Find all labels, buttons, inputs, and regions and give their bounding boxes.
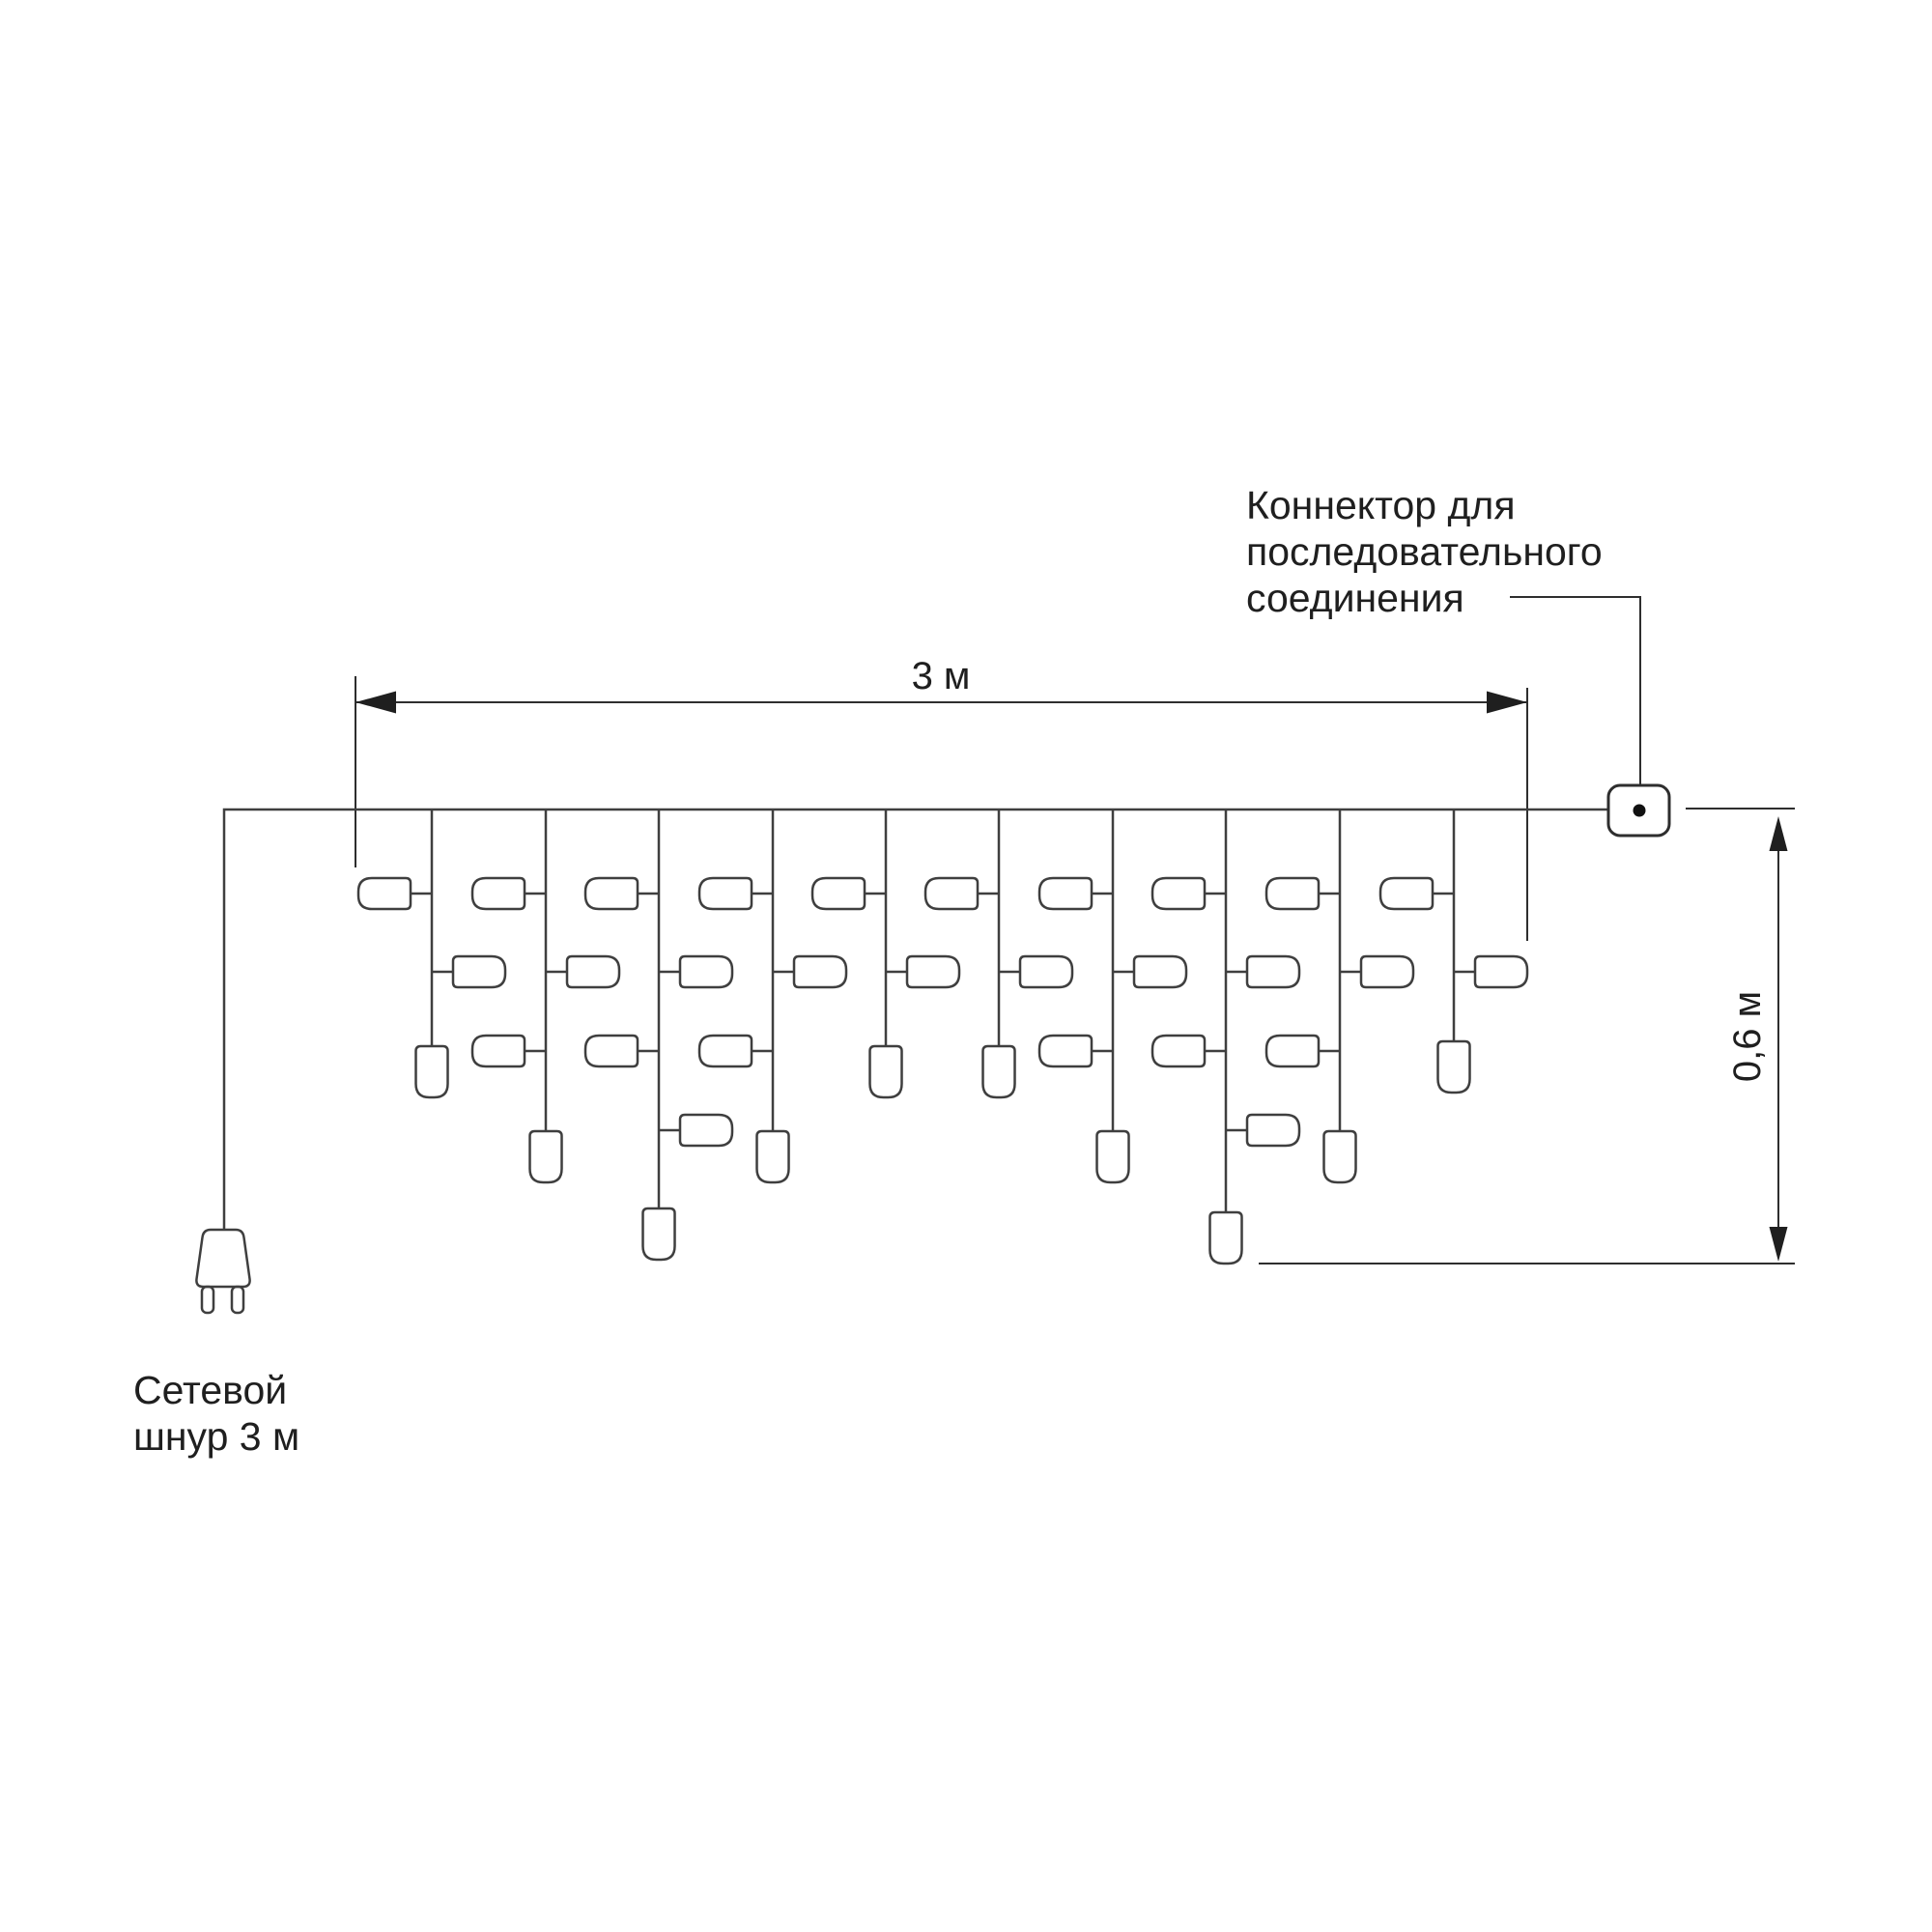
bulb — [1266, 1036, 1319, 1066]
connector-label: Коннектор для последовательного соединен… — [1246, 483, 1603, 620]
end-bulb — [1324, 1131, 1356, 1182]
bulb — [1247, 956, 1299, 987]
connector-label-line1: Коннектор для — [1246, 483, 1516, 527]
height-dimension-label: 0,6 м — [1726, 991, 1769, 1082]
bulb — [1380, 878, 1433, 909]
end-bulb — [983, 1046, 1015, 1097]
bulb — [1152, 878, 1205, 909]
bulb — [585, 1036, 638, 1066]
bulb — [567, 956, 619, 987]
end-bulb — [1097, 1131, 1129, 1182]
end-bulb — [643, 1208, 675, 1260]
connector-leader-line — [1510, 597, 1640, 806]
bulb — [907, 956, 959, 987]
bulb — [812, 878, 865, 909]
power-cord-label: Сетевой шнур 3 м — [133, 1368, 299, 1459]
bulb — [453, 956, 505, 987]
end-bulb — [530, 1131, 562, 1182]
end-bulb — [757, 1131, 789, 1182]
plug-prong-left — [202, 1287, 213, 1313]
bulb — [358, 878, 411, 909]
bulb — [699, 878, 752, 909]
arrow-up-icon — [1770, 816, 1788, 851]
connector-dot-icon — [1634, 805, 1646, 817]
power-cord-label-line2: шнур 3 м — [133, 1414, 299, 1459]
bulb — [1039, 878, 1092, 909]
end-bulb — [1210, 1212, 1242, 1264]
bulb — [1266, 878, 1319, 909]
bulb — [680, 1115, 732, 1146]
end-bulb — [870, 1046, 902, 1097]
bulb — [472, 1036, 525, 1066]
bulb — [794, 956, 846, 987]
arrow-down-icon — [1770, 1227, 1788, 1262]
end-bulb — [1438, 1041, 1470, 1093]
connector-label-line3: соединения — [1246, 576, 1464, 620]
bulb — [472, 878, 525, 909]
plug-body — [196, 1230, 249, 1287]
power-plug-icon — [196, 1230, 249, 1313]
bulb — [699, 1036, 752, 1066]
bulb — [1039, 1036, 1092, 1066]
diagram-page: 3 м Коннектор для последовательного соед… — [0, 0, 1932, 1932]
garland — [358, 810, 1527, 1264]
power-cord-label-line1: Сетевой — [133, 1368, 287, 1412]
bulb — [1247, 1115, 1299, 1146]
bulb — [1475, 956, 1527, 987]
bulb — [1020, 956, 1072, 987]
arrow-left-icon — [355, 692, 396, 714]
width-dimension-label: 3 м — [912, 655, 971, 697]
bulb — [1361, 956, 1413, 987]
bulb — [1134, 956, 1186, 987]
bulb — [925, 878, 978, 909]
bulb — [585, 878, 638, 909]
bulb — [680, 956, 732, 987]
bulb — [1152, 1036, 1205, 1066]
connector-label-line2: последовательного — [1246, 529, 1603, 574]
plug-prong-right — [232, 1287, 243, 1313]
diagram-canvas: 3 м Коннектор для последовательного соед… — [0, 0, 1932, 1932]
arrow-right-icon — [1487, 692, 1527, 714]
end-bulb — [416, 1046, 448, 1097]
